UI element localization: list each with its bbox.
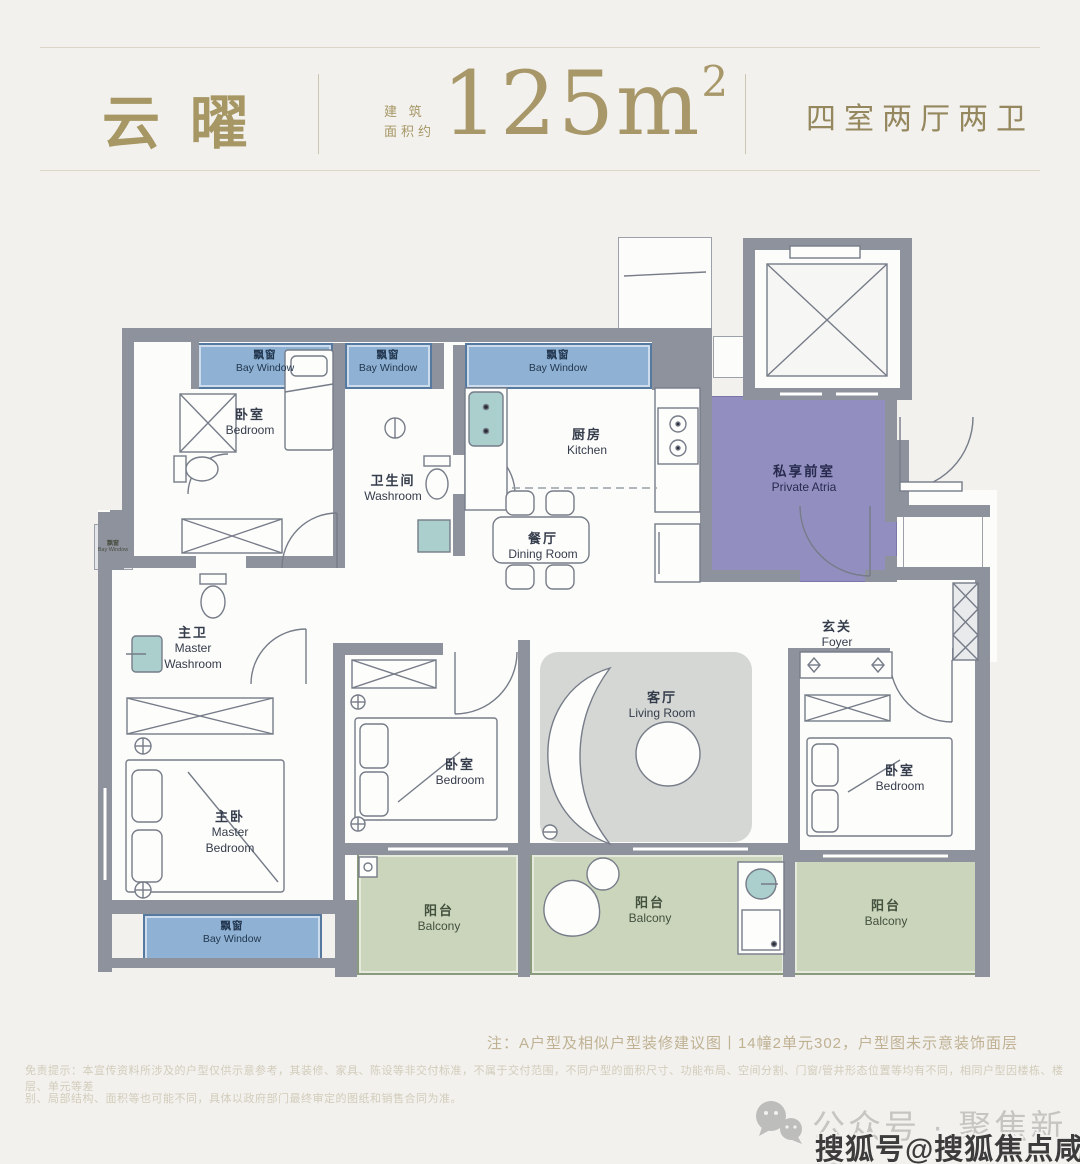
- wall: [897, 440, 909, 510]
- wall: [700, 330, 712, 582]
- label-bay-window-1: 飘窗 Bay Window: [236, 347, 294, 376]
- wall: [518, 640, 530, 977]
- wall: [743, 238, 755, 400]
- wall: [246, 556, 344, 568]
- sohu-watermark: 搜狐号@搜狐焦点咸宁站: [815, 1126, 1080, 1164]
- header-divider-right: [745, 74, 746, 154]
- label-washroom: 卫生间 Washroom: [364, 470, 422, 505]
- wall: [743, 238, 912, 250]
- floorplan-poster: 云曜 建 筑 面积约 125m2 四室两厅两卫: [0, 0, 1080, 1164]
- label-bay-window-3: 飘窗 Bay Window: [529, 347, 587, 376]
- wall: [345, 843, 790, 855]
- wall: [975, 853, 990, 977]
- label-bay-window-2: 飘窗 Bay Window: [359, 347, 417, 376]
- label-bay-window-left: 飘窗 Bay Window: [98, 538, 129, 554]
- disclaimer-line2: 别、局部结构、面积等也可能不同，具体以政府部门最终审定的图纸和销售合同为准。: [25, 1090, 462, 1106]
- plan-title: 云曜: [102, 76, 278, 160]
- area-prefix-line2: 面积约: [384, 124, 435, 139]
- area-value: 125m2: [442, 52, 728, 155]
- wall: [783, 853, 795, 977]
- wall: [333, 343, 345, 568]
- wall: [98, 900, 338, 914]
- wall: [755, 388, 900, 400]
- wall: [897, 567, 990, 580]
- area-prefix-line1: 建 筑: [384, 104, 426, 119]
- wall: [345, 643, 443, 655]
- label-master-washroom: 主卫 Master Washroom: [164, 622, 222, 672]
- wall: [333, 643, 345, 912]
- wall: [432, 343, 444, 389]
- wall: [335, 900, 357, 977]
- label-bedroom-middle: 卧室 Bedroom: [436, 754, 485, 789]
- room-block-right-bedroom: [788, 645, 990, 862]
- wall: [865, 570, 897, 582]
- wall: [885, 396, 897, 522]
- wall: [788, 648, 800, 862]
- header-divider-left: [318, 74, 319, 154]
- room-block-elevator: [743, 238, 912, 400]
- floor-plan: 飘窗 Bay Window 飘窗 Bay Window 飘窗 Bay Windo…: [88, 232, 1008, 987]
- wall: [975, 580, 990, 862]
- layout-spec: 四室两厅两卫: [806, 94, 1034, 138]
- wall: [800, 850, 990, 862]
- label-foyer: 玄关 Foyer: [822, 616, 853, 651]
- area-number: 125m: [442, 52, 701, 155]
- label-balcony-left: 阳台 Balcony: [418, 900, 461, 935]
- wechat-icon: [754, 1100, 806, 1146]
- label-kitchen: 厨房 Kitchen: [567, 424, 607, 459]
- wall: [897, 505, 990, 517]
- area-prefix: 建 筑 面积约: [384, 102, 435, 142]
- label-balcony-right: 阳台 Balcony: [865, 895, 908, 930]
- area-superscript: 2: [701, 57, 728, 106]
- label-balcony-middle: 阳台 Balcony: [629, 892, 672, 927]
- wall: [191, 328, 199, 389]
- wall: [900, 238, 912, 400]
- label-dining-room: 餐厅 Dining Room: [508, 528, 577, 563]
- label-bedroom-top-left: 卧室 Bedroom: [226, 404, 275, 439]
- wall: [98, 958, 338, 968]
- wall: [453, 345, 465, 455]
- wall: [122, 328, 712, 342]
- shaft-block: [618, 237, 712, 332]
- top-rule: [40, 47, 1040, 48]
- entry-niche: [903, 513, 983, 569]
- label-bedroom-right: 卧室 Bedroom: [876, 760, 925, 795]
- label-private-atria: 私享前室 Private Atria: [772, 460, 837, 496]
- label-bay-window-bottom: 飘窗 Bay Window: [203, 918, 261, 947]
- header-bottom-rule: [40, 170, 1040, 171]
- wall: [453, 494, 465, 556]
- wall: [710, 570, 800, 582]
- plan-note: 注：A户型及相似户型装修建议图丨14幢2单元302，户型图未示意装饰面层: [487, 1032, 1018, 1053]
- label-master-bedroom: 主卧 Master Bedroom: [206, 806, 255, 856]
- label-living-room: 客厅 Living Room: [629, 687, 696, 722]
- wall: [134, 556, 196, 568]
